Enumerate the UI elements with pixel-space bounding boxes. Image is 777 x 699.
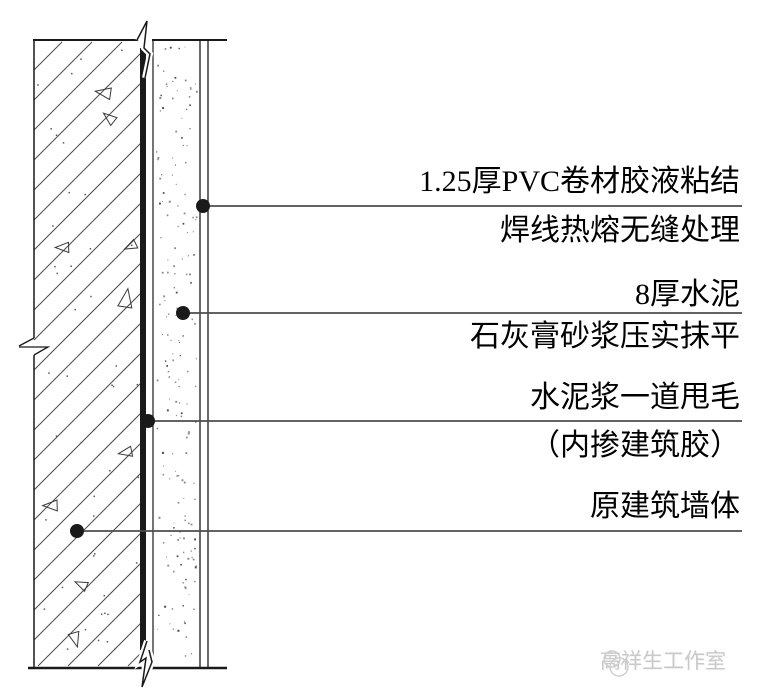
wall-speck	[107, 614, 109, 616]
stipple-speck	[170, 535, 171, 536]
wall-speck	[98, 640, 100, 642]
label-slurry-line1: 水泥浆一道甩毛	[530, 379, 740, 417]
stipple-speck	[185, 162, 187, 164]
leader-dot-pvc	[196, 199, 210, 213]
stipple-speck	[183, 145, 184, 146]
stipple-speck	[163, 295, 165, 297]
stipple-speck	[172, 158, 173, 159]
stipple-speck	[160, 110, 161, 111]
stipple-speck	[184, 623, 185, 624]
stipple-speck	[189, 104, 191, 106]
stipple-speck	[164, 300, 165, 301]
wall-speck	[74, 309, 76, 311]
stipple-speck	[195, 386, 196, 387]
hatch-line	[68, 592, 142, 666]
stipple-speck	[178, 386, 179, 387]
stipple-speck	[172, 453, 173, 454]
construction-detail-drawing: 1.25厚PVC卷材胶液粘结 焊线热熔无缝处理 8厚水泥 石灰膏砂浆压实抹平 水…	[0, 0, 777, 699]
wall-speck	[85, 629, 87, 631]
stipple-speck	[195, 83, 196, 84]
stipple-speck	[181, 416, 183, 418]
wall-speck	[116, 365, 118, 367]
stipple-speck	[156, 151, 157, 152]
wall-speck	[90, 296, 92, 298]
stipple-speck	[178, 226, 179, 227]
stipple-speck	[187, 558, 189, 560]
stipple-speck	[164, 606, 166, 608]
wall-speck	[85, 194, 87, 196]
stipple-speck	[195, 219, 196, 220]
hatch-line	[34, 262, 142, 370]
wall-speck	[44, 608, 46, 610]
wall-speck	[138, 477, 140, 479]
stipple-speck	[159, 517, 161, 519]
aggregate-triangle	[68, 631, 79, 647]
stipple-speck	[172, 360, 174, 362]
stipple-speck	[169, 376, 171, 378]
stipple-speck	[162, 272, 164, 274]
stipple-speck	[181, 118, 182, 119]
stipple-speck	[187, 232, 188, 233]
stipple-speck	[176, 292, 178, 294]
stipple-speck	[159, 97, 161, 99]
hatch-line	[34, 202, 142, 310]
wall-speck	[109, 470, 111, 472]
stipple-speck	[167, 565, 169, 567]
stipple-speck	[165, 48, 167, 50]
stipple-speck	[188, 431, 190, 433]
wall-speck	[63, 142, 65, 144]
stipple-speck	[166, 316, 167, 317]
stipple-speck	[181, 412, 183, 414]
hatch-line	[34, 82, 142, 190]
plaster-stipple-texture	[156, 47, 198, 657]
stipple-speck	[158, 157, 160, 159]
stipple-speck	[157, 159, 159, 161]
hatch-line	[34, 112, 142, 220]
wall-speck	[54, 266, 56, 268]
stipple-speck	[177, 630, 179, 632]
stipple-speck	[186, 636, 188, 638]
wall-speck	[67, 375, 69, 377]
stipple-speck	[175, 382, 177, 384]
stipple-speck	[169, 399, 170, 400]
hatch-line	[34, 142, 142, 250]
stipple-speck	[194, 538, 196, 540]
bottom-break-halo	[140, 641, 152, 687]
stipple-speck	[193, 231, 194, 232]
stipple-speck	[188, 255, 189, 256]
stipple-speck	[173, 265, 175, 267]
wall-speck	[69, 192, 71, 194]
stipple-speck	[177, 90, 178, 91]
wall-speck	[122, 71, 124, 73]
stipple-speck	[175, 165, 176, 166]
stipple-speck	[186, 437, 188, 439]
stipple-speck	[185, 452, 187, 454]
stipple-speck	[189, 96, 191, 98]
hatch-line	[34, 532, 142, 640]
stipple-speck	[173, 527, 175, 529]
leader-dot-wall	[70, 524, 84, 538]
stipple-speck	[166, 557, 167, 558]
stipple-speck	[166, 86, 167, 87]
hatch-line	[34, 42, 62, 70]
stipple-speck	[185, 47, 186, 48]
stipple-speck	[157, 629, 158, 630]
stipple-speck	[196, 216, 198, 218]
hatch-line	[34, 502, 142, 610]
wall-speck	[94, 429, 96, 431]
stipple-speck	[161, 174, 162, 175]
stipple-speck	[179, 537, 180, 538]
stipple-speck	[163, 474, 165, 476]
hatch-line	[34, 352, 142, 460]
stipple-speck	[183, 582, 184, 583]
stipple-speck	[161, 95, 163, 97]
wall-speck	[45, 519, 47, 521]
break-marks	[19, 21, 152, 687]
stipple-speck	[172, 353, 173, 354]
stipple-speck	[191, 524, 193, 526]
wall-speck	[50, 128, 52, 130]
stipple-speck	[163, 542, 165, 544]
hatch-line	[98, 622, 142, 666]
stipple-speck	[196, 91, 198, 93]
stipple-speck	[178, 502, 180, 504]
stipple-speck	[186, 403, 187, 404]
stipple-speck	[168, 314, 169, 315]
stipple-speck	[179, 48, 180, 49]
stipple-speck	[162, 107, 164, 109]
stipple-speck	[190, 282, 192, 284]
stipple-speck	[183, 605, 184, 606]
stipple-speck	[183, 223, 185, 225]
stipple-speck	[172, 81, 173, 82]
hatch-line	[34, 52, 142, 160]
stipple-speck	[163, 466, 164, 467]
aggregate-triangle	[125, 240, 138, 250]
watermark: 高祥生工作室	[600, 646, 726, 678]
stipple-speck	[192, 319, 194, 321]
hatch-line	[34, 322, 142, 430]
wall-speck	[136, 562, 138, 564]
stipple-speck	[159, 203, 161, 205]
stipple-speck	[166, 83, 168, 85]
wall-speck	[52, 225, 54, 227]
stipple-speck	[166, 365, 168, 367]
aggregate-triangle	[118, 446, 132, 456]
stipple-speck	[169, 201, 171, 203]
stipple-speck	[194, 323, 196, 325]
stipple-speck	[163, 71, 164, 72]
stipple-speck	[190, 87, 192, 89]
leader-dot-slurry	[141, 414, 155, 428]
stipple-speck	[194, 581, 195, 582]
stipple-speck	[167, 260, 168, 261]
wall-speck	[57, 273, 59, 275]
hatch-line	[38, 562, 142, 666]
stipple-speck	[177, 555, 179, 557]
stipple-speck	[185, 515, 186, 516]
wall-speck	[56, 435, 58, 437]
stipple-speck	[170, 47, 172, 49]
stipple-speck	[169, 623, 170, 624]
stipple-speck	[157, 380, 159, 382]
left-break-jog-lower	[19, 347, 48, 355]
stipple-speck	[172, 98, 174, 100]
wall-speck	[37, 84, 39, 86]
wall-speck	[70, 266, 72, 268]
label-pvc-line1: 1.25厚PVC卷材胶液粘结	[419, 163, 740, 201]
leader-lines	[77, 206, 742, 531]
stipple-speck	[184, 482, 186, 484]
wall-speck	[71, 73, 73, 75]
stipple-speck	[174, 247, 176, 249]
stipple-speck	[162, 201, 163, 202]
stipple-speck	[174, 287, 176, 289]
stipple-speck	[167, 334, 169, 336]
wall-speck	[62, 587, 64, 589]
stipple-speck	[157, 428, 159, 430]
stipple-speck	[193, 254, 195, 256]
wall-hatch-pattern	[34, 42, 142, 666]
stipple-speck	[169, 478, 170, 479]
stipple-speck	[194, 499, 195, 500]
stipple-speck	[184, 621, 185, 622]
stipple-speck	[193, 483, 194, 484]
stipple-speck	[184, 586, 186, 588]
stipple-speck	[159, 178, 161, 180]
stipple-speck	[192, 557, 193, 558]
hatch-line	[34, 42, 122, 130]
label-existing-wall: 原建筑墙体	[590, 488, 740, 526]
aggregate-triangle	[95, 88, 111, 100]
stipple-speck	[173, 571, 175, 573]
hatch-line	[34, 442, 142, 550]
stipple-speck	[187, 371, 189, 373]
stipple-speck	[172, 608, 174, 610]
stipple-speck	[184, 520, 186, 522]
wall-speck	[107, 641, 109, 643]
leader-dot-cement	[176, 306, 190, 320]
aggregate-triangles	[43, 88, 138, 647]
stipple-speck	[183, 537, 185, 539]
hatch-line	[34, 382, 142, 490]
stipple-speck	[177, 205, 178, 206]
aggregate-triangle	[104, 113, 118, 125]
stipple-speck	[191, 550, 192, 551]
stipple-speck	[181, 137, 183, 139]
stipple-speck	[162, 334, 163, 335]
stipple-speck	[188, 523, 190, 525]
stipple-speck	[173, 629, 174, 630]
section-outlines	[28, 40, 227, 668]
stipple-speck	[196, 358, 197, 359]
label-slurry-line2: （内掺建筑胶）	[530, 427, 740, 465]
stipple-speck	[189, 594, 190, 595]
wall-speck	[137, 384, 139, 386]
wall-speck	[94, 553, 96, 555]
stipple-speck	[180, 355, 181, 356]
aggregate-triangle	[75, 582, 88, 591]
stipple-speck	[176, 184, 177, 185]
hatch-line	[34, 412, 142, 520]
stipple-speck	[182, 258, 183, 259]
stipple-speck	[175, 131, 177, 133]
stipple-speck	[190, 89, 191, 90]
wall-speck	[113, 386, 115, 388]
hatch-line	[34, 472, 142, 580]
stipple-speck	[163, 192, 165, 194]
label-pvc-line2: 焊线热熔无缝处理	[500, 212, 740, 250]
label-cement-line2: 石灰膏砂浆压实抹平	[470, 318, 740, 356]
hatch-line	[34, 292, 142, 400]
stipple-speck	[172, 175, 173, 176]
left-break-jog-upper	[19, 338, 34, 346]
stipple-speck	[192, 217, 194, 219]
stipple-speck	[183, 498, 184, 499]
stipple-speck	[167, 215, 169, 217]
label-cement-line1: 8厚水泥	[635, 276, 740, 314]
stipple-speck	[186, 274, 188, 276]
stipple-speck	[159, 304, 161, 306]
stipple-speck	[194, 548, 196, 550]
stipple-speck	[167, 272, 169, 274]
wall-speck	[90, 248, 92, 250]
stipple-speck	[180, 564, 182, 566]
stipple-speck	[175, 401, 177, 403]
wall-speck	[93, 555, 95, 557]
hatch-line	[34, 172, 142, 280]
stipple-speck	[195, 567, 197, 569]
stipple-speck	[167, 409, 169, 411]
wall-speck	[67, 648, 69, 650]
stipple-speck	[183, 552, 184, 553]
wall-speck	[104, 595, 106, 597]
stipple-speck	[158, 615, 159, 616]
stipple-speck	[177, 475, 179, 477]
stipple-speck	[191, 653, 192, 654]
wall-speck	[121, 50, 123, 52]
stipple-speck	[177, 539, 179, 541]
stipple-speck	[185, 655, 187, 657]
wall-speck	[80, 58, 82, 60]
stipple-speck	[182, 335, 184, 337]
wall-speck	[104, 613, 106, 615]
studio-logo-icon	[600, 646, 632, 680]
stipple-speck	[165, 360, 166, 361]
wall-speck	[56, 135, 58, 137]
wall-speck	[111, 385, 113, 387]
stipple-speck	[168, 371, 170, 373]
wall-speck	[94, 496, 96, 498]
stipple-speck	[182, 479, 184, 481]
stipple-speck	[157, 65, 159, 67]
stipple-speck	[174, 273, 175, 274]
stipple-speck	[189, 273, 191, 275]
stipple-speck	[184, 194, 185, 195]
stipple-speck	[185, 579, 187, 581]
stipple-speck	[174, 523, 175, 524]
stipple-speck	[162, 452, 164, 454]
stipple-speck	[176, 415, 177, 416]
wall-speck	[81, 442, 83, 444]
wall-speck	[101, 614, 103, 616]
stipple-speck	[175, 77, 177, 79]
stipple-speck	[178, 340, 179, 341]
stipple-speck	[179, 342, 180, 343]
stipple-speck	[160, 237, 161, 238]
stipple-speck	[184, 213, 186, 215]
stipple-speck	[175, 471, 176, 472]
stipple-speck	[186, 109, 187, 110]
wall-speck	[115, 648, 117, 650]
wall-speck	[131, 245, 133, 247]
stipple-speck	[178, 475, 179, 476]
stipple-speck	[188, 433, 190, 435]
wall-speck	[93, 515, 95, 517]
stipple-speck	[178, 379, 179, 380]
stipple-speck	[193, 609, 195, 611]
stipple-speck	[193, 559, 195, 561]
hatch-line	[34, 42, 92, 100]
stipple-speck	[189, 128, 190, 129]
wall-speck	[48, 372, 50, 374]
aggregate-triangle	[118, 289, 132, 308]
stipple-speck	[179, 403, 180, 404]
stipple-speck	[171, 340, 172, 341]
stipple-speck	[175, 315, 176, 316]
wall-speck-texture	[37, 50, 139, 650]
stipple-speck	[185, 80, 187, 82]
stipple-speck	[187, 145, 188, 146]
